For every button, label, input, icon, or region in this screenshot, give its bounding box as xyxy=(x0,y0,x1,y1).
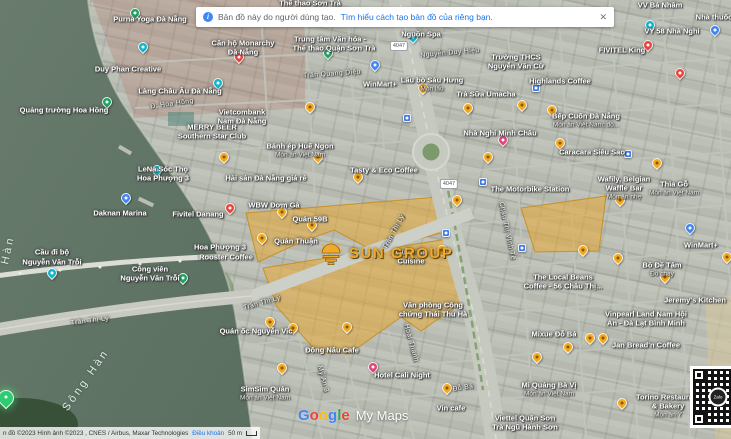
place-label: Món ăn Việt Nam; đồ... xyxy=(553,122,619,129)
place-label: Purna Yoga Đà Nẵng xyxy=(113,15,187,24)
place-label: Căn hộ Monarchy xyxy=(212,39,275,48)
place-label: Quảng trường Hoa Hồng xyxy=(20,106,109,115)
attribution-bar: n đồ ©2023 Hình ảnh ©2023 , CNES / Airbu… xyxy=(0,427,260,439)
qr-code: Zalo xyxy=(690,366,731,428)
place-label: Lẩu bò Sáu Hưng xyxy=(401,76,464,85)
map-pin-y[interactable] xyxy=(442,383,452,393)
map-pin-y[interactable] xyxy=(483,152,493,162)
map-pin-y[interactable] xyxy=(305,102,315,112)
place-label: SimSim Quán xyxy=(241,385,290,394)
map-pin-y[interactable] xyxy=(452,195,462,205)
place-label: Hoa Phượng 3 xyxy=(137,174,189,183)
place-label: Waffle Bar xyxy=(606,184,643,193)
place-label: & Bakery xyxy=(652,402,685,411)
map-pin-sq[interactable] xyxy=(479,178,487,186)
place-label: Caracara Siêu Sao xyxy=(559,148,625,157)
map-pin-sq[interactable] xyxy=(518,244,526,252)
place-label: Vin cafe xyxy=(437,404,466,413)
google-logo-letter: e xyxy=(341,407,349,424)
place-label: Món ăn Việt Nam xyxy=(649,190,699,197)
place-label: WinMart+ xyxy=(684,241,718,250)
qr-center-badge: Zalo xyxy=(709,388,728,407)
sun-icon xyxy=(318,240,344,266)
map-pin-tl[interactable] xyxy=(138,42,148,52)
place-label: Món lẩu xyxy=(420,86,443,93)
imagery-credit: n đồ ©2023 Hình ảnh ©2023 , CNES / Airbu… xyxy=(3,430,188,437)
map-pin-sq[interactable] xyxy=(442,229,450,237)
place-label: Trà Sữa Umacha xyxy=(456,90,515,99)
place-label: Hotel Cali Night xyxy=(374,371,430,380)
map-pin-re[interactable] xyxy=(675,68,685,78)
place-label: Hoa Phượng 3 xyxy=(194,243,246,252)
place-label: VY 58 Nhà Nghỉ xyxy=(644,27,699,36)
google-logo-letter: g xyxy=(328,407,337,424)
place-label: Làng Châu Âu Đà Nẵng xyxy=(138,87,221,96)
place-label: Hải sản Đà Nẵng giá rẻ xyxy=(225,174,306,183)
place-label: Đông Nâu Cafe xyxy=(305,346,359,355)
place-label: Trà Ngũ Hành Sơn xyxy=(492,423,558,432)
place-label: Quán 59B xyxy=(292,215,327,224)
place-label: chứng Thái Thu Hà xyxy=(399,310,467,319)
roundabout xyxy=(413,134,449,170)
map-pin-y[interactable] xyxy=(722,252,731,262)
place-label: Daknan Marina xyxy=(93,209,146,218)
google-logo-letter: G xyxy=(298,407,310,424)
map-pin-y[interactable] xyxy=(598,333,608,343)
place-label: Đồ chay xyxy=(650,271,674,278)
qr-finder-icon xyxy=(693,413,705,425)
map-pin-y[interactable] xyxy=(578,245,588,255)
place-label: FIVITEL King xyxy=(599,46,646,55)
user-map-banner: i Bản đồ này do người dùng tạo. Tìm hiểu… xyxy=(196,7,614,27)
map-pin-y[interactable] xyxy=(613,253,623,263)
map-pin-y[interactable] xyxy=(219,152,229,162)
place-label: Món ăn Ý xyxy=(654,412,682,419)
place-label: Món ăn Việt Nam xyxy=(524,391,574,398)
map-pin-y[interactable] xyxy=(265,317,275,327)
place-label: Wafily, Belgian xyxy=(598,175,651,184)
place-label: LeNa Sóc Thọ xyxy=(138,165,188,174)
place-label: Vinpearl Land Nam Hội xyxy=(605,310,687,319)
sun-group-logo-text: SUN GROUP xyxy=(349,245,453,262)
place-label: Bánh ép Huế Ngon xyxy=(266,142,333,151)
place-label: Highlands Coffee xyxy=(529,77,591,86)
banner-close-icon[interactable]: ✕ xyxy=(599,12,607,23)
place-label: Bếp Cuốn Đà Nẵng xyxy=(552,112,620,121)
place-label: Trung tâm Văn hóa - xyxy=(294,35,366,44)
map-pin-y[interactable] xyxy=(563,342,573,352)
map-pin-bl[interactable] xyxy=(685,223,695,233)
place-label: VV Bá Nhâm xyxy=(638,1,683,10)
place-label: Nguyễn Văn Trỗi xyxy=(120,274,179,283)
map-pin-y[interactable] xyxy=(585,333,595,343)
map-pin-y[interactable] xyxy=(517,100,527,110)
road-shield: 4047 xyxy=(440,179,458,189)
place-label: Trường THCS xyxy=(491,53,541,62)
map-pin-sq[interactable] xyxy=(624,150,632,158)
place-label: Vietcombank xyxy=(219,108,266,117)
google-logo-letter: o xyxy=(310,407,319,424)
place-label: An - Đà Lạt Bình Minh xyxy=(607,319,685,328)
place-label: Nhà thuốc xyxy=(696,13,731,22)
map-pin-sq[interactable] xyxy=(403,114,411,122)
place-label: WinMart+ xyxy=(363,80,397,89)
place-label: Jan Bread'n Coffee xyxy=(612,341,680,350)
google-my-maps-watermark[interactable]: Google My Maps xyxy=(298,407,408,424)
banner-text: Bản đồ này do người dùng tạo. xyxy=(218,12,336,22)
place-label: Thìa Gỗ xyxy=(660,180,688,189)
place-label: Bồ Đề Tâm xyxy=(642,261,681,270)
google-logo: Google xyxy=(298,407,350,424)
place-label: The Motorbike Station xyxy=(491,185,570,194)
place-label: Tasty & Eco Coffee xyxy=(350,166,418,175)
my-maps-label: My Maps xyxy=(356,408,409,423)
place-label: Duy Phan Creative xyxy=(95,65,161,74)
map-pin-re[interactable] xyxy=(225,203,235,213)
place-label: Nhà Nghỉ Minh Châu xyxy=(463,129,536,138)
place-label: Coffee - 56 Châu Thị... xyxy=(524,282,603,291)
map-pin-bg[interactable] xyxy=(0,390,14,406)
map-pin-y[interactable] xyxy=(277,363,287,373)
map-pin-y[interactable] xyxy=(652,158,662,168)
map-pin-bl[interactable] xyxy=(370,60,380,70)
place-label: Thể thao Quận Sơn Trà xyxy=(293,44,376,53)
map-pin-y[interactable] xyxy=(463,103,473,113)
place-label: Đà Nẵng xyxy=(228,48,258,57)
road-shield: 4047 xyxy=(390,41,408,51)
banner-learn-link[interactable]: Tìm hiểu cách tạo bản đồ của riêng bạn. xyxy=(341,12,493,22)
map-pin-y[interactable] xyxy=(617,398,627,408)
scale-bar xyxy=(246,431,257,436)
place-label: Nguyễn Văn Cừ xyxy=(488,62,544,71)
place-label: Văn phòng Công xyxy=(403,301,463,310)
place-label: Southern Star Club xyxy=(178,132,246,141)
map-pin-y[interactable] xyxy=(257,233,267,243)
map-pin-y[interactable] xyxy=(532,352,542,362)
place-label: The Local Beans xyxy=(533,273,593,282)
scale-text: 50 m xyxy=(228,430,242,437)
place-label: Mì Quảng Bà Vị xyxy=(521,381,576,390)
place-label: Quán Thuận xyxy=(274,237,318,246)
map-pin-bl[interactable] xyxy=(121,193,131,203)
place-label: Nam Đà Nẵng xyxy=(218,117,267,126)
map-pin-y[interactable] xyxy=(342,322,352,332)
place-label: Jeremy's Kitchen xyxy=(664,296,726,305)
place-label: Món ăn nhẹ xyxy=(607,194,641,201)
place-label: WBW Đơm Gà xyxy=(248,201,299,210)
place-label: Món ăn Việt Nam xyxy=(240,395,290,402)
sun-group-logo: SUN GROUP xyxy=(318,240,453,266)
place-label: Công viên xyxy=(132,265,168,274)
map-pin-tl[interactable] xyxy=(47,268,57,278)
google-logo-letter: o xyxy=(319,407,328,424)
place-label: Món ăn Việt Nam xyxy=(275,152,325,159)
place-label: Nguồn Spa xyxy=(401,30,441,39)
qr-finder-icon xyxy=(693,369,705,381)
map-pin-bl[interactable] xyxy=(710,25,720,35)
map-viewport[interactable]: Thể thao Sơn TràPurna Yoga Đà NẵngCăn hộ… xyxy=(0,0,731,439)
place-label: Nguyễn Văn Trỗi xyxy=(22,258,81,267)
place-label: Cầu đi bộ xyxy=(35,248,69,257)
qr-pattern: Zalo xyxy=(693,369,731,425)
info-icon: i xyxy=(203,12,213,22)
place-label: Viettel Quận Sơn xyxy=(495,414,556,423)
terms-link[interactable]: Điều khoản xyxy=(192,430,224,437)
place-label: Mixue Đỗ Bá xyxy=(531,330,576,339)
place-label: Quán ốc Nguyễn Vic xyxy=(220,327,293,336)
map-pin-y[interactable] xyxy=(555,138,565,148)
place-label: Fivitel Danang xyxy=(172,210,223,219)
place-label: Rooster Coffee xyxy=(199,253,253,262)
